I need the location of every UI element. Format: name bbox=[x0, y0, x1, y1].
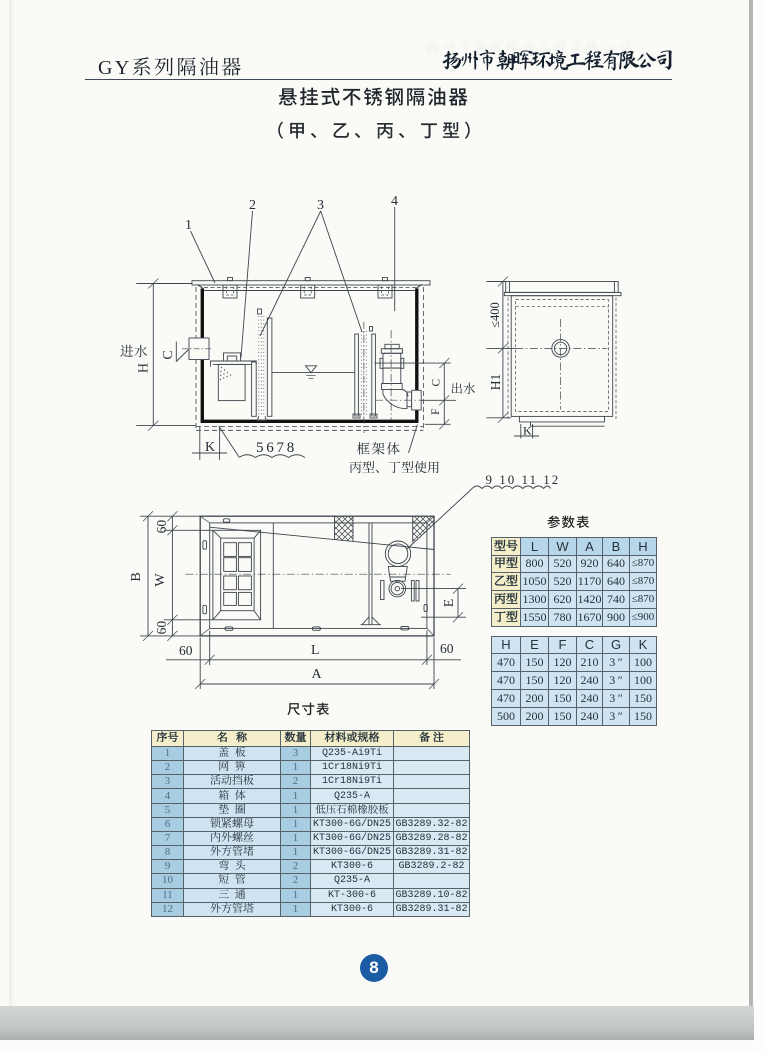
svg-text:H: H bbox=[137, 363, 152, 373]
svg-text:E: E bbox=[441, 599, 456, 607]
svg-text:进水: 进水 bbox=[120, 344, 148, 359]
svg-text:F: F bbox=[430, 408, 442, 414]
svg-text:1: 1 bbox=[185, 218, 192, 233]
svg-text:K: K bbox=[205, 440, 215, 455]
svg-text:框架体: 框架体 bbox=[357, 442, 402, 457]
svg-text:60: 60 bbox=[154, 621, 169, 635]
svg-text:K: K bbox=[523, 424, 532, 438]
svg-text:C: C bbox=[430, 379, 442, 387]
svg-text:9 10 11 12: 9 10 11 12 bbox=[486, 472, 561, 487]
svg-text:5 6 7 8: 5 6 7 8 bbox=[256, 440, 294, 456]
svg-text:W: W bbox=[153, 573, 168, 587]
svg-text:4: 4 bbox=[391, 194, 398, 209]
svg-text:H1: H1 bbox=[488, 374, 503, 391]
svg-text:A: A bbox=[312, 667, 323, 682]
svg-text:≤400: ≤400 bbox=[488, 302, 502, 328]
svg-text:L: L bbox=[311, 643, 320, 658]
svg-text:60: 60 bbox=[179, 643, 193, 658]
svg-text:3: 3 bbox=[317, 198, 324, 213]
svg-text:60: 60 bbox=[440, 641, 454, 656]
svg-text:60: 60 bbox=[154, 520, 169, 534]
svg-text:C: C bbox=[161, 350, 176, 359]
svg-text:2: 2 bbox=[249, 198, 256, 213]
svg-text:出水: 出水 bbox=[451, 382, 477, 396]
svg-text:丙型、丁型使用: 丙型、丁型使用 bbox=[349, 460, 440, 475]
svg-text:B: B bbox=[129, 572, 144, 581]
